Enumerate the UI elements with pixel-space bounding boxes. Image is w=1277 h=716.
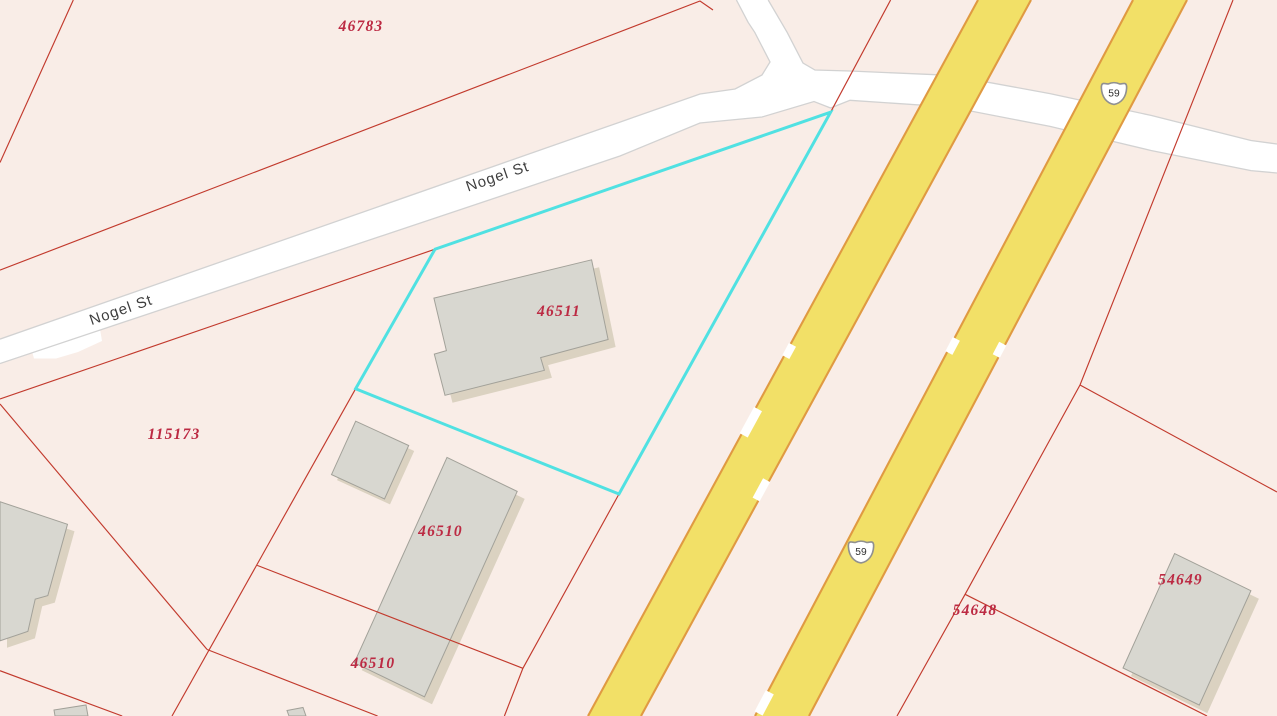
svg-text:46783: 46783 <box>338 18 384 35</box>
svg-text:46511: 46511 <box>536 303 581 320</box>
svg-text:54648: 54648 <box>953 602 998 619</box>
svg-text:59: 59 <box>1108 89 1120 100</box>
svg-text:59: 59 <box>855 547 867 558</box>
svg-text:46510: 46510 <box>417 523 463 540</box>
svg-text:46510: 46510 <box>350 655 396 672</box>
svg-text:54649: 54649 <box>1158 572 1203 589</box>
svg-text:115173: 115173 <box>148 426 201 443</box>
